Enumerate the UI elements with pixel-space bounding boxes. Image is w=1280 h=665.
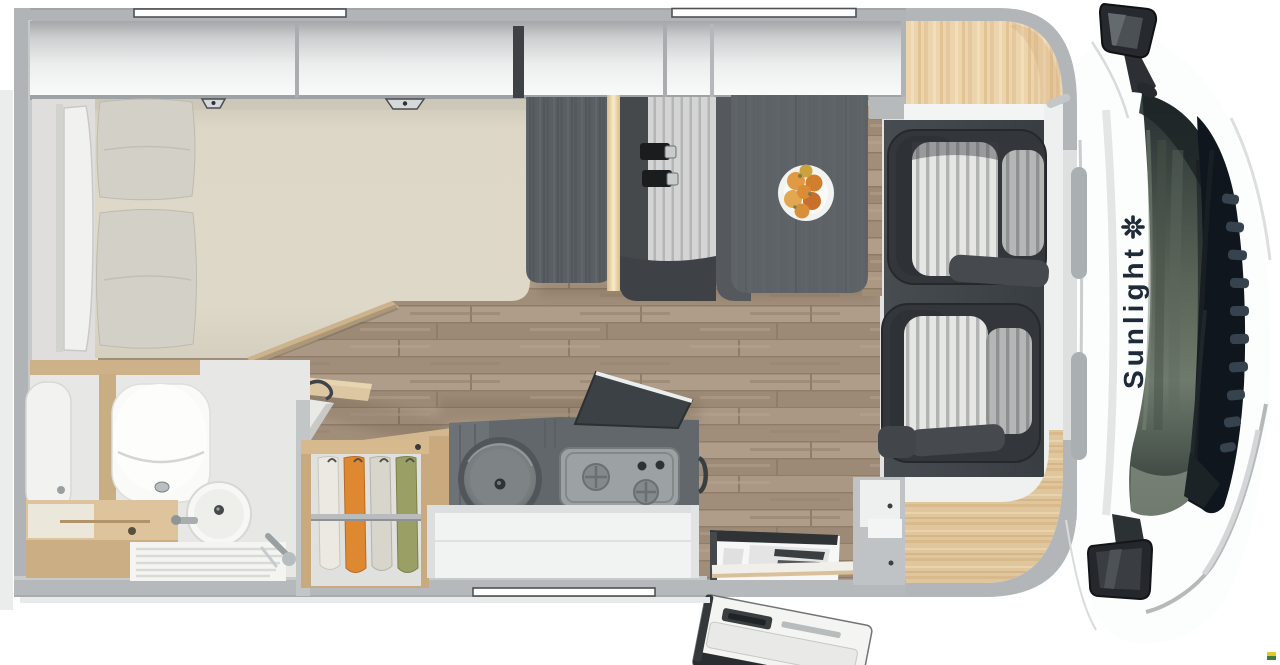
svg-text:Sunlight: Sunlight — [1118, 245, 1149, 389]
